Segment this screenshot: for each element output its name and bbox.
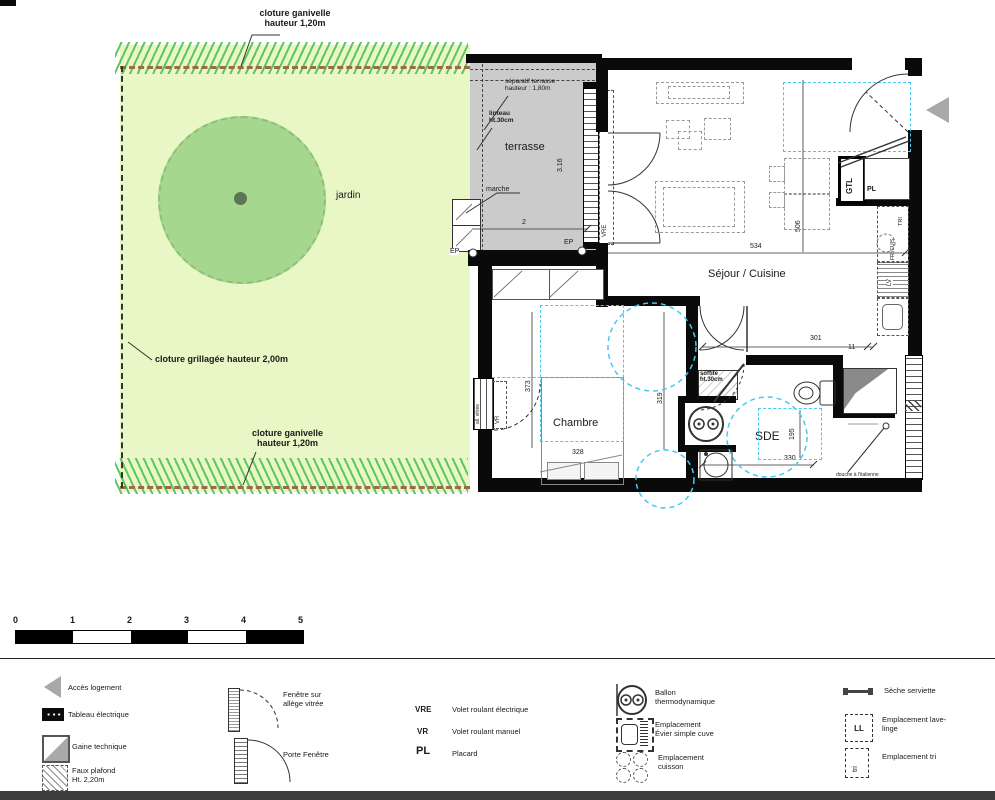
legend-vre-abbr: VRE <box>415 705 431 714</box>
cooking-spot-icon <box>633 768 648 783</box>
legend-washer-label: Emplacement lave- linge <box>882 715 946 733</box>
access-arrow-icon <box>44 676 61 698</box>
towel-rail-end <box>843 688 848 695</box>
legend-window-sill-label: Fenêtre sur allège vitrée <box>283 690 323 708</box>
scale-segment <box>73 631 130 643</box>
tri-spot-abbr: tri <box>852 766 859 772</box>
legend-towel-label: Sèche serviette <box>884 686 936 695</box>
floor-plan-page: { "colors": { "garden_fill": "#e9f6c6", … <box>0 0 995 800</box>
legend-vr-label: Volet roulant manuel <box>452 727 520 736</box>
legend-sink-label: Emplacement Évier simple cuve <box>655 720 714 738</box>
scale-tick: 4 <box>241 615 246 625</box>
legend-boiler-label: Ballon thermodynamique <box>655 688 715 706</box>
cooking-spot-icon <box>633 752 648 767</box>
legend-tri-label: Emplacement tri <box>882 752 936 761</box>
tri-spot-icon <box>845 748 869 778</box>
sink-drainer-icon <box>640 721 648 746</box>
plan-linework <box>0 0 995 800</box>
legend-pl-abbr: PL <box>416 745 430 757</box>
cooking-spot-icon <box>616 768 631 783</box>
sink-spot-icon <box>616 718 654 752</box>
legend-duct-label: Gaine technique <box>72 742 127 751</box>
cooking-spot-icon <box>616 752 631 767</box>
false-ceiling-icon <box>42 765 68 791</box>
legend-vre-label: Volet roulant électrique <box>452 705 528 714</box>
washer-spot-icon: LL <box>845 714 873 742</box>
scale-segment <box>246 631 303 643</box>
electrical-panel-icon <box>42 708 64 721</box>
scale-tick: 2 <box>127 615 132 625</box>
scale-bar-strip <box>15 630 304 644</box>
legend-cooking-label: Emplacement cuisson <box>658 753 704 771</box>
scale-tick: 3 <box>184 615 189 625</box>
window-sill-icon <box>228 688 240 732</box>
towel-rail-end <box>868 688 873 695</box>
page-footer-bar <box>0 791 995 800</box>
legend-panel-label: Tableau électrique <box>68 710 129 719</box>
scale-segment <box>131 631 188 643</box>
legend-ceiling-label: Faux plafond Ht. 2,20m <box>72 766 115 784</box>
scale-tick: 0 <box>13 615 18 625</box>
scale-tick: 1 <box>70 615 75 625</box>
scale-tick: 5 <box>298 615 303 625</box>
legend-access-label: Accès logement <box>68 683 121 692</box>
french-door-icon <box>234 738 248 784</box>
scale-segment <box>16 631 73 643</box>
legend-vr-abbr: VR <box>417 727 428 736</box>
sink-bowl-icon <box>621 724 638 745</box>
scale-segment <box>188 631 245 643</box>
legend-french-door-label: Porte Fenêtre <box>283 750 329 759</box>
legend-divider <box>0 658 995 659</box>
legend-pl-label: Placard <box>452 749 477 758</box>
technical-duct-icon <box>42 735 70 763</box>
